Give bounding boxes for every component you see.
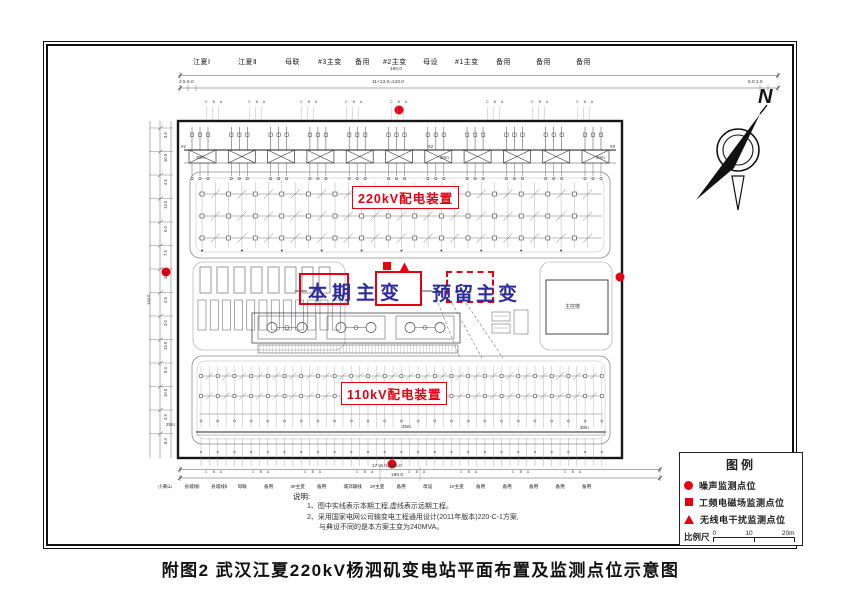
plan-line	[519, 236, 523, 240]
plan-line	[261, 106, 262, 120]
plan-line	[493, 106, 494, 120]
top-bay-label: 备用	[536, 57, 551, 67]
top-bay-label: 江夏Ⅱ	[238, 57, 257, 67]
plan-line	[316, 375, 319, 378]
radio-triangle-icon	[684, 515, 694, 524]
plan-line	[589, 106, 590, 120]
left-dim-tick: 10.5	[163, 388, 168, 396]
plan-line	[439, 236, 443, 240]
plan-line	[567, 375, 570, 378]
phase-letters: C B A	[300, 100, 319, 104]
plan-line	[466, 303, 503, 358]
emf-monitor-square	[383, 262, 391, 270]
plan-line	[521, 177, 523, 179]
plan-line	[217, 267, 228, 293]
plan-line	[517, 375, 520, 378]
plan-line	[348, 177, 350, 179]
plan-line	[400, 375, 403, 378]
bottom-bay-label: 备用	[264, 484, 273, 490]
plan-line	[253, 192, 257, 196]
bottom-bay-label: 城郊输线	[344, 484, 362, 490]
plan-line	[386, 236, 390, 240]
plan-line	[216, 375, 219, 378]
plan-line	[572, 192, 576, 196]
plan-line	[333, 375, 336, 378]
bottom-bay-label: 备用	[582, 484, 591, 490]
plan-line	[584, 395, 587, 398]
bottom-bay-label: 2#主变	[370, 484, 384, 490]
plan-line	[413, 236, 417, 240]
plan-line	[440, 250, 442, 252]
plan-line	[280, 214, 284, 218]
dim-bottom-total: 190.0	[391, 473, 403, 478]
plan-line	[358, 106, 359, 120]
plan-line	[572, 236, 576, 240]
left-dim-tick: 13.0	[163, 271, 168, 279]
phase-letters: C B A	[531, 100, 550, 104]
plan-line	[316, 395, 319, 398]
plan-line	[346, 106, 347, 120]
plan-line	[560, 250, 562, 252]
bottom-bay-label: 备用	[503, 484, 512, 490]
phase-letters: C B A	[304, 470, 323, 474]
bus-point-label: #1	[181, 144, 186, 149]
plan-line	[247, 300, 255, 330]
plan-line	[309, 177, 311, 179]
compass-icon: N	[688, 86, 796, 214]
plan-line	[480, 250, 482, 252]
plan-line	[534, 395, 537, 398]
plan-line	[267, 323, 277, 333]
plan-line	[300, 395, 303, 398]
plan-line	[546, 214, 550, 218]
plan-line	[438, 303, 460, 358]
plan-line	[300, 375, 303, 378]
scale-bar: 比例尺 0 10 20m	[684, 530, 798, 543]
plan-line	[333, 236, 337, 240]
plan-line	[218, 106, 219, 120]
phase-letters: C B A	[564, 470, 583, 474]
notes-block: 说明: 1、图中实线表示本期工程,虚线表示远期工程。 2、采用国家电网公司输变电…	[293, 491, 633, 534]
left-dim-tick: 7.5	[163, 250, 168, 256]
scale-label: 比例尺	[684, 531, 710, 543]
legend-item-label: 噪声监测点位	[699, 479, 756, 492]
plan-line	[361, 250, 363, 252]
plan-line	[281, 250, 283, 252]
phase-letters: C B A	[356, 470, 375, 474]
plan-line	[233, 375, 236, 378]
bus-point-label: #2	[428, 144, 433, 149]
plan-line	[250, 375, 253, 378]
plan-line	[577, 106, 578, 120]
dim-bottom-run: 17×8.0=136.0	[372, 464, 402, 469]
dim-margin-left: 2.5 6.0	[179, 80, 194, 85]
plan-line	[350, 375, 353, 378]
plan-line	[545, 177, 547, 179]
bottom-bay-label: 备用	[556, 484, 565, 490]
bottom-bay-label: 备用	[317, 484, 326, 490]
plan-line	[306, 236, 310, 240]
plan-line	[306, 192, 310, 196]
bottom-bay-label: 备用	[476, 484, 485, 490]
plan-line	[499, 106, 500, 120]
left-dim-tick: 4.5	[163, 297, 168, 303]
plan-line	[546, 192, 550, 196]
main-transformer-label: 本期主变	[308, 278, 404, 305]
plan-line	[333, 395, 336, 398]
plan-line	[206, 106, 207, 120]
left-dim-tick: 5.4	[163, 367, 168, 373]
emf-square-icon	[685, 498, 693, 506]
left-dim-tick: 5.0	[163, 226, 168, 232]
plan-line	[266, 395, 269, 398]
noise-monitor-dot	[395, 106, 404, 115]
top-bay-label: 江夏Ⅰ	[193, 57, 211, 67]
scale-tick-10: 10	[745, 530, 752, 537]
plan-line	[249, 106, 250, 120]
plan-line	[356, 177, 358, 179]
plan-line	[283, 395, 286, 398]
plan-line	[233, 395, 236, 398]
plan-line	[266, 375, 269, 378]
plan-line	[439, 214, 443, 218]
plan-line	[493, 236, 497, 240]
dim-top-run: 11×13.0=143.0	[372, 80, 404, 85]
plan-line	[386, 214, 390, 218]
bottom-bay-label: 1#主变	[450, 484, 464, 490]
plan-line	[550, 395, 553, 398]
plan-line	[268, 267, 279, 293]
bottom-bay-label: 县城线Ⅱ	[211, 484, 227, 490]
bottom-bay-label: 母联	[238, 484, 247, 490]
plan-line	[200, 236, 204, 240]
bus-point-label: #3	[610, 144, 615, 149]
bottom-bay-label: 县城线Ⅰ	[185, 484, 200, 490]
plan-line	[212, 106, 213, 120]
note-line: 与典设不同的是本方案主变为240MVA。	[293, 523, 633, 534]
plan-line	[443, 177, 445, 179]
dim-margin-right: 6.0 2.5	[748, 80, 763, 85]
plan-line	[313, 106, 314, 120]
plan-line	[285, 267, 296, 293]
plan-line	[227, 192, 231, 196]
distance-label: 30m	[196, 155, 205, 160]
plan-line	[466, 192, 470, 196]
top-bay-label: 备用	[496, 57, 511, 67]
top-bay-label: #3主变	[318, 57, 342, 67]
top-bay-label: 备用	[355, 57, 370, 67]
plan-line	[222, 300, 230, 330]
plan-line	[435, 177, 437, 179]
phase-letters: C B A	[390, 100, 409, 104]
plan-line	[405, 323, 415, 333]
plan-line	[333, 214, 337, 218]
top-bay-label: #1主变	[455, 57, 479, 67]
plan-line	[253, 236, 257, 240]
plan-line	[467, 375, 470, 378]
note-line: 2、采用国家电网公司输变电工程通用设计(2011年版本)220-C-1方案,	[293, 513, 633, 524]
dim-top-total: 190.0	[390, 67, 402, 72]
legend-title: 图例	[684, 456, 798, 473]
plan-line	[534, 375, 537, 378]
plan-line	[492, 324, 510, 333]
left-dim-tick: 13.0	[163, 200, 168, 208]
plan-line	[546, 236, 550, 240]
plan-line	[360, 214, 364, 218]
plan-line	[307, 106, 308, 120]
plan-line	[482, 177, 484, 179]
scale-tick-0: 0	[713, 530, 717, 537]
plan-line	[364, 177, 366, 179]
phase-letters: C B A	[512, 470, 531, 474]
plan-line	[592, 177, 594, 179]
top-bay-label: 备用	[576, 57, 591, 67]
plan-line	[538, 106, 539, 120]
area-label-110kv: 110kV配电装置	[341, 382, 447, 405]
plan-line	[200, 395, 203, 398]
plan-line	[403, 106, 404, 120]
legend-item-label: 无线电干扰监测点位	[700, 513, 786, 526]
legend-box: 图例 噪声监测点位 工频电磁场监测点位 无线电干扰监测点位 比例尺 0 10 2…	[679, 452, 803, 546]
plan-line	[227, 214, 231, 218]
left-dim-tick: 4.5	[163, 179, 168, 185]
plan-line	[227, 236, 231, 240]
plan-line	[235, 300, 243, 330]
left-dim-tick: 13.0	[163, 341, 168, 349]
scale-tick-20m: 20m	[782, 530, 795, 537]
plan-line	[544, 106, 545, 120]
distance-label: 30m	[580, 425, 589, 430]
phase-letters: C B A	[486, 100, 505, 104]
plan-line	[391, 106, 392, 120]
plan-line	[474, 177, 476, 179]
plan-line	[280, 192, 284, 196]
bottom-bay-label: 小黄山	[158, 484, 172, 490]
plan-line	[583, 106, 584, 120]
plan-line	[250, 395, 253, 398]
plan-line	[269, 177, 271, 179]
plan-line	[467, 395, 470, 398]
plan-line	[520, 250, 522, 252]
plan-line	[297, 323, 307, 333]
phase-letters: C B A	[205, 100, 224, 104]
plan-line	[285, 177, 287, 179]
phase-letters: C B A	[460, 470, 479, 474]
bottom-bay-label: 3#主变	[291, 484, 305, 490]
plan-line	[600, 375, 603, 378]
plan-line	[492, 312, 510, 321]
reserved-transformer-label: 预留主变	[432, 279, 520, 306]
plan-line	[435, 323, 445, 333]
plan-line	[572, 214, 576, 218]
plan-line	[517, 395, 520, 398]
plan-line	[519, 214, 523, 218]
plan-line	[259, 300, 267, 330]
plan-line	[333, 192, 337, 196]
plan-line	[234, 267, 245, 293]
plan-line	[500, 395, 503, 398]
plan-line	[366, 323, 376, 333]
top-bay-label: 母联	[285, 57, 300, 67]
plan-line	[513, 177, 515, 179]
plan-line	[336, 323, 346, 333]
plan-line	[584, 177, 586, 179]
plan-line	[283, 375, 286, 378]
bottom-bay-label: 备用	[397, 484, 406, 490]
plan-line	[251, 267, 262, 293]
plan-line	[600, 395, 603, 398]
plan-line	[401, 250, 403, 252]
plan-line	[450, 395, 453, 398]
phase-letters: C B A	[345, 100, 364, 104]
plan-line	[230, 177, 232, 179]
plan-line	[450, 375, 453, 378]
dim-left-total: 144.0	[146, 295, 151, 305]
drawing-title: 附图2 武汉江夏220kV杨泗矶变电站平面布置及监测点位示意图	[0, 556, 841, 581]
plan-line	[258, 345, 458, 353]
plan-line	[367, 375, 370, 378]
legend-item-noise: 噪声监测点位	[684, 480, 798, 490]
plan-line	[321, 250, 323, 252]
distance-label: 30m	[596, 155, 605, 160]
radio-monitor-triangle	[400, 263, 409, 272]
plan-line	[253, 214, 257, 218]
plan-line	[210, 300, 218, 330]
plan-line	[584, 375, 587, 378]
left-dim-tick: 3.5	[163, 132, 168, 138]
phase-letters: C B A	[576, 100, 595, 104]
plan-line	[532, 106, 533, 120]
plan-line	[207, 177, 209, 179]
plan-line	[246, 177, 248, 179]
plan-line	[550, 375, 553, 378]
phase-letters: C B A	[205, 470, 224, 474]
bottom-bay-label: 备用	[529, 484, 538, 490]
plan-line	[433, 375, 436, 378]
plan-line	[553, 177, 555, 179]
plan-line	[493, 214, 497, 218]
plan-line	[271, 300, 279, 330]
plan-line	[280, 236, 284, 240]
notes-heading: 说明:	[293, 491, 633, 502]
plan-line	[325, 177, 327, 179]
legend-item-emf: 工频电磁场监测点位	[684, 497, 798, 507]
plan-line	[216, 395, 219, 398]
left-dim-tick: 8.4	[163, 438, 168, 444]
left-dim-tick: 10.5	[163, 153, 168, 161]
plan-line	[483, 395, 486, 398]
plan-line	[413, 214, 417, 218]
plan-line	[500, 375, 503, 378]
plan-line	[306, 214, 310, 218]
plan-line	[387, 177, 389, 179]
top-bay-label: 母设	[423, 57, 438, 67]
plan-line	[466, 236, 470, 240]
plan-line	[427, 177, 429, 179]
left-dim-tick: 4.5	[163, 414, 168, 420]
plan-line	[352, 106, 353, 120]
area-label-220kv: 220kV配电装置	[352, 186, 459, 209]
distance-label: 25m	[166, 422, 175, 427]
legend-item-radio: 无线电干扰监测点位	[684, 514, 798, 524]
noise-monitor-dot	[616, 273, 625, 282]
bottom-bay-label: 母设	[423, 484, 432, 490]
legend-item-label: 工频电磁场监测点位	[699, 496, 785, 509]
plan-line	[200, 267, 211, 293]
phase-letters: C B A	[408, 470, 427, 474]
plan-line	[200, 214, 204, 218]
plan-line	[200, 375, 203, 378]
plan-line	[277, 177, 279, 179]
compass-north-label: N	[758, 86, 773, 108]
plan-line	[383, 375, 386, 378]
plan-line	[238, 177, 240, 179]
phase-letters: C B A	[252, 470, 271, 474]
plan-line	[200, 192, 204, 196]
plan-line	[493, 192, 497, 196]
plan-line	[317, 177, 319, 179]
plan-line	[514, 310, 528, 334]
plan-line	[466, 214, 470, 218]
plan-line	[466, 177, 468, 179]
phase-letters: C B A	[248, 100, 267, 104]
plan-line	[201, 250, 203, 252]
distance-label: 30m	[440, 155, 449, 160]
distance-label: 25m	[402, 424, 411, 429]
compass-needle	[696, 114, 760, 200]
plan-line	[417, 375, 420, 378]
note-line: 1、图中实线表示本期工程,虚线表示远期工程。	[293, 502, 633, 513]
plan-line	[360, 236, 364, 240]
plan-line	[483, 375, 486, 378]
plan-line	[487, 106, 488, 120]
plan-line	[567, 395, 570, 398]
plan-line	[395, 177, 397, 179]
control-building-label: 主控楼	[565, 303, 580, 310]
plan-line	[561, 177, 563, 179]
plan-line	[301, 106, 302, 120]
plan-line	[255, 106, 256, 120]
scale-line	[713, 537, 795, 543]
left-dim-tick: 3.0	[163, 320, 168, 326]
plan-line	[505, 177, 507, 179]
noise-dot-icon	[684, 481, 693, 490]
plan-line	[198, 300, 206, 330]
top-bay-label: #2主变	[383, 57, 407, 67]
plan-line	[403, 177, 405, 179]
plan-line	[519, 192, 523, 196]
plan-line	[241, 250, 243, 252]
